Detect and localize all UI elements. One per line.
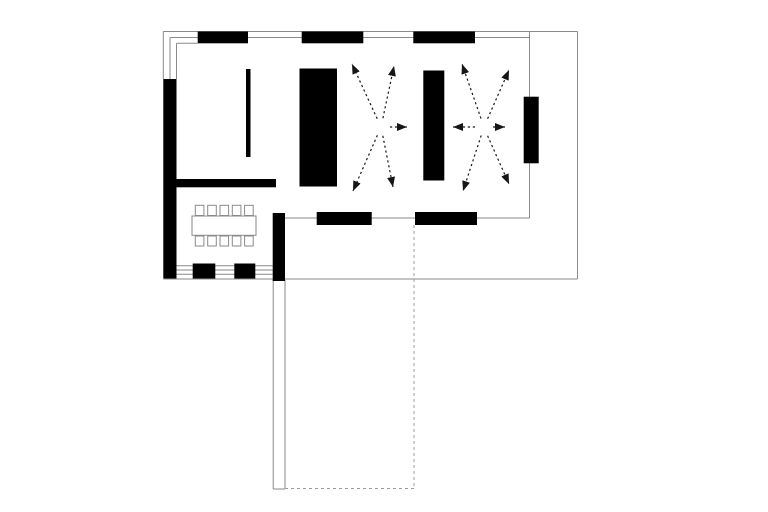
direction-arrow (383, 66, 394, 118)
dining-east-wall (273, 213, 285, 281)
dining-chair (232, 205, 241, 215)
dining-chair (220, 236, 229, 246)
dining-table (192, 216, 256, 235)
dining-chair (220, 205, 229, 215)
window-mullion-2 (234, 264, 255, 279)
core-wall-1 (300, 69, 338, 187)
direction-arrow (353, 135, 377, 191)
window-mullion-1 (193, 264, 216, 279)
dining-north-wall (165, 179, 276, 187)
radiating-arrows-right (453, 64, 509, 191)
radiating-arrows-left (352, 64, 407, 191)
dining-chair (245, 205, 254, 215)
direction-arrow (462, 64, 481, 119)
direction-arrow (488, 70, 509, 119)
direction-arrow (383, 136, 393, 187)
south-wall-segment-1 (317, 212, 372, 225)
dining-chair (232, 236, 241, 246)
floor-plan-canvas (0, 0, 768, 512)
south-wall-segment-2 (415, 212, 477, 225)
direction-arrow (352, 64, 377, 119)
direction-arrow (463, 136, 481, 192)
north-wall-segment-1 (198, 32, 248, 44)
dining-chair (208, 205, 217, 215)
freestanding-screen-wall (246, 69, 251, 157)
east-wall-pier (524, 97, 539, 164)
direction-arrow (488, 136, 509, 184)
floor-plan-drawing (0, 0, 768, 512)
north-wall-segment-2 (302, 32, 364, 44)
core-wall-2 (423, 71, 444, 181)
dining-chair (245, 236, 254, 246)
west-wall (163, 79, 176, 279)
dining-chair (195, 236, 204, 246)
north-wall-segment-3 (413, 32, 475, 44)
dining-chair (195, 205, 204, 215)
dining-chair (208, 236, 217, 246)
